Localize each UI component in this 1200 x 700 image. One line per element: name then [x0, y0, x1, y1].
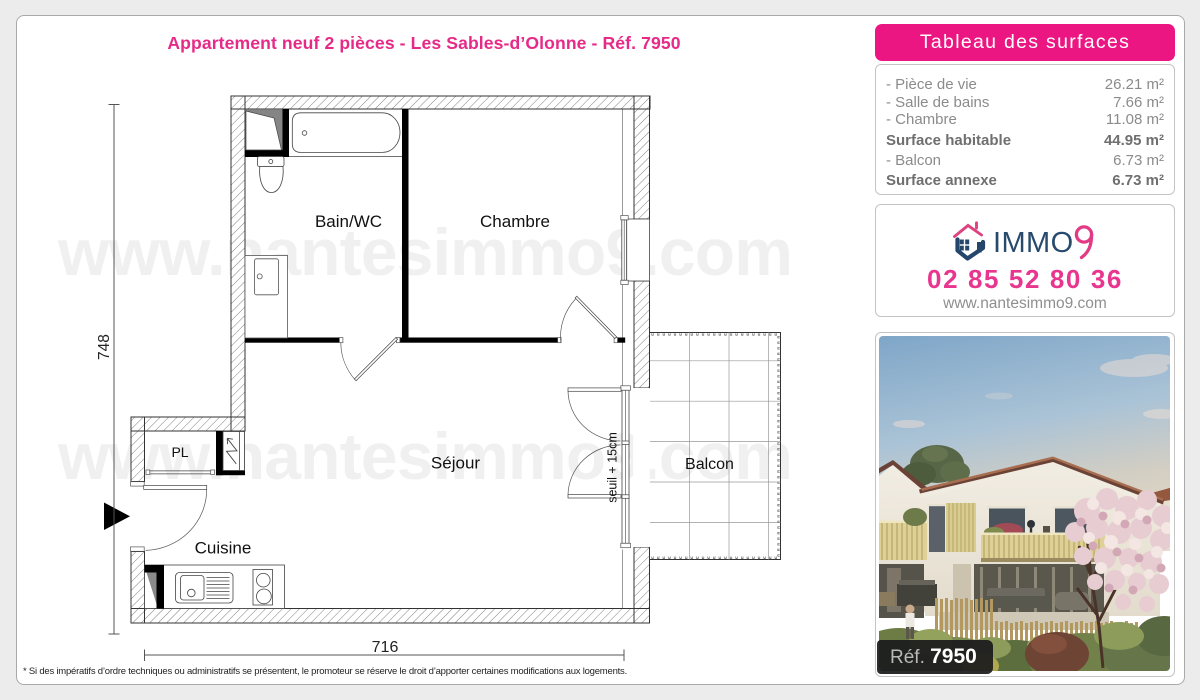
svg-text:Balcon: Balcon	[685, 456, 734, 473]
svg-text:Séjour: Séjour	[431, 454, 480, 473]
svg-text:PL: PL	[171, 444, 188, 460]
svg-text:Bain/WC: Bain/WC	[315, 212, 382, 231]
svg-text:seuil + 15cm: seuil + 15cm	[606, 432, 620, 503]
svg-text:Chambre: Chambre	[480, 212, 550, 231]
svg-text:IMMO: IMMO	[993, 227, 1074, 259]
svg-text:Cuisine: Cuisine	[195, 539, 252, 558]
svg-text:716: 716	[372, 639, 399, 656]
svg-text:748: 748	[96, 334, 113, 360]
